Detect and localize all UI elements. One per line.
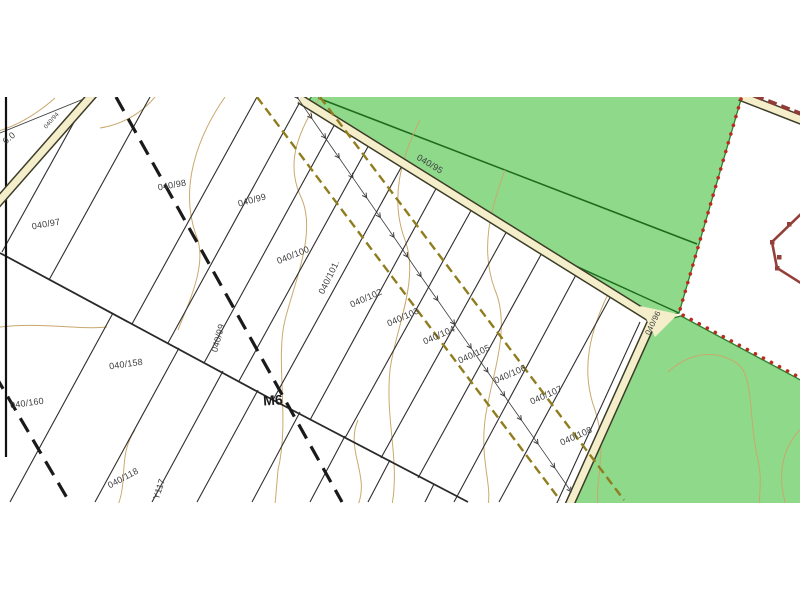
vegetation-area-group (306, 96, 800, 505)
parcel-boundaries-lower (10, 313, 434, 502)
main-boundary-line-m6 (0, 253, 468, 502)
map-viewport[interactable]: 0.0040/94040/97040/98040/99040/95040/960… (0, 0, 800, 600)
building-outline (770, 212, 800, 285)
cadastral-map-canvas[interactable] (0, 0, 800, 600)
